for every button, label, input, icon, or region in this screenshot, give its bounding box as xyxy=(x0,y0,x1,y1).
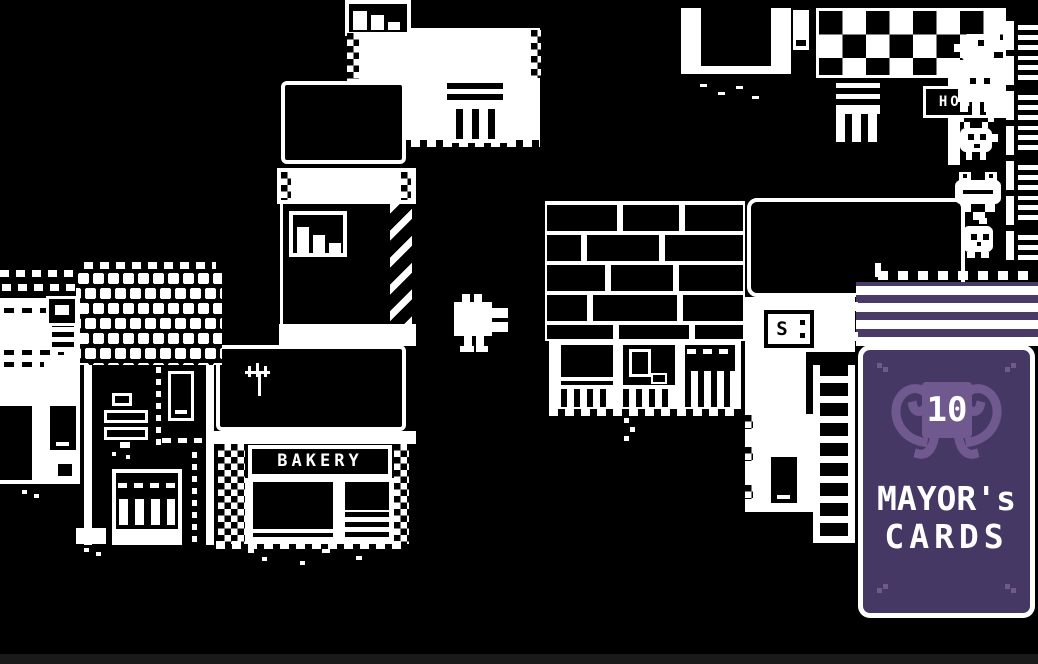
cobblestone-roof xyxy=(76,271,222,365)
debris-dot xyxy=(624,418,629,423)
diagonal-stripe-column xyxy=(390,204,412,324)
bakery-band xyxy=(211,431,416,444)
window-pane xyxy=(353,11,367,30)
debris-dot xyxy=(300,561,305,565)
bakery-sign: BAKERY xyxy=(248,445,392,478)
npc-sprout-sprite[interactable] xyxy=(955,212,1001,260)
doorstep xyxy=(76,528,106,544)
bakery-pillar-left xyxy=(218,444,245,544)
tall-window xyxy=(168,371,194,421)
brick-storefront xyxy=(549,341,741,409)
roof-ridge-dashes xyxy=(84,262,216,269)
wall-texture-dashes xyxy=(0,270,78,277)
debris-dot xyxy=(630,427,635,432)
wall-trim xyxy=(745,447,753,461)
dark-doorway xyxy=(0,406,32,480)
facade-post xyxy=(206,365,214,545)
ladder-rungs xyxy=(820,369,848,543)
ladder-gaps xyxy=(1006,16,1038,260)
band-trim xyxy=(281,172,291,200)
dotted-trim xyxy=(156,367,161,445)
card-stack-crenellation xyxy=(878,271,1036,280)
edge-ladder[interactable] xyxy=(1006,16,1038,260)
footprint-dash xyxy=(736,86,743,89)
hanging-sign xyxy=(104,393,152,463)
mayors-cards-hud[interactable]: 10 MAYOR's CARDS xyxy=(845,262,1038,622)
band-trim xyxy=(401,172,411,200)
wall-trim xyxy=(531,30,541,78)
footprint-dash xyxy=(700,84,707,87)
footprint-dash xyxy=(718,92,725,95)
bakery-sign-text: BAKERY xyxy=(252,449,388,474)
vent-sign: S xyxy=(764,310,814,348)
npc-bird-sprite[interactable] xyxy=(952,22,1006,70)
blinds-window xyxy=(443,75,507,143)
wall-trim xyxy=(347,33,359,79)
chimney-cap xyxy=(46,296,78,326)
door-post xyxy=(771,8,791,74)
dark-window xyxy=(50,406,76,450)
building-cobble-house xyxy=(76,262,222,552)
window-bars xyxy=(447,109,503,139)
npc-frog-sprite[interactable] xyxy=(953,172,1003,214)
building-bakery: BAKERY xyxy=(211,345,416,560)
dormer-window xyxy=(345,0,411,36)
building-foundation-dashes xyxy=(549,409,741,416)
shop-window xyxy=(253,482,333,537)
chimney-body xyxy=(52,326,74,352)
window-shutter xyxy=(345,510,389,532)
card-corner-ornament xyxy=(1011,588,1016,593)
facade-post xyxy=(84,365,92,545)
door-threshold xyxy=(681,66,791,74)
building-far-left xyxy=(0,262,84,498)
vent-sign-glyph: S xyxy=(770,316,794,342)
house-facade xyxy=(84,365,214,545)
window-pane xyxy=(313,235,325,253)
ladder-rail xyxy=(813,365,820,543)
sparkle-icon xyxy=(688,28,693,33)
card-stack-stripes xyxy=(856,282,1038,346)
pillar xyxy=(793,10,809,50)
wall-trim xyxy=(745,415,753,429)
chart-window xyxy=(289,211,347,257)
fence xyxy=(561,389,613,407)
shop-window xyxy=(685,345,735,371)
debris-dot xyxy=(96,552,101,556)
bakery-pillar-right xyxy=(394,444,409,544)
npc-beetle-sprite[interactable] xyxy=(950,116,1002,162)
card-stack-edge xyxy=(848,302,858,311)
window-pane xyxy=(371,15,384,30)
mini-box xyxy=(651,373,667,384)
mini-window xyxy=(629,349,651,377)
window-pane xyxy=(329,243,341,253)
debris-dot xyxy=(84,548,89,552)
player-character[interactable] xyxy=(450,292,508,354)
card-title-line2: CARDS xyxy=(863,518,1030,554)
npc-ghost-sprite[interactable] xyxy=(956,70,1002,118)
card-title-line1: MAYOR's xyxy=(863,480,1030,516)
wall-vent xyxy=(58,464,72,476)
dotted-trim xyxy=(192,450,197,542)
dotted-trim xyxy=(162,438,202,443)
dark-door xyxy=(771,457,797,503)
roof-antenna xyxy=(248,363,288,403)
window-blinds xyxy=(447,79,503,105)
wall-trim xyxy=(745,485,753,499)
shop-window xyxy=(561,345,613,385)
footprint-dash xyxy=(752,96,759,99)
tower-band xyxy=(277,168,416,204)
debris-dot xyxy=(624,436,629,441)
screen-bottom-edge xyxy=(0,654,1038,664)
shop-window xyxy=(345,482,389,537)
hotel-blinds-window xyxy=(836,80,880,142)
fence xyxy=(623,389,675,407)
game-viewport: BAKERY xyxy=(0,0,1038,664)
fence xyxy=(685,371,735,407)
card-count-badge: 10 xyxy=(922,382,972,438)
debris-dot xyxy=(22,490,27,494)
tower-roof xyxy=(281,81,406,164)
card-stack-edge xyxy=(850,332,858,341)
building-tower xyxy=(277,75,417,347)
grid-window xyxy=(112,469,182,545)
window-pane xyxy=(297,227,309,253)
tower-lower-band xyxy=(279,324,416,346)
building-foundation-dashes xyxy=(216,541,406,549)
bakery-storefront xyxy=(245,478,394,544)
sparkle-icon xyxy=(696,38,701,43)
debris-dot xyxy=(34,494,39,498)
shop-window xyxy=(623,345,675,385)
building-hotel: HOH xyxy=(660,0,1006,262)
window-pane xyxy=(388,22,400,30)
wall-texture-dashes xyxy=(2,284,76,291)
bakery-roof xyxy=(216,345,406,431)
card-face: 10 MAYOR's CARDS xyxy=(858,345,1035,618)
card-corner-ornament xyxy=(877,588,882,593)
